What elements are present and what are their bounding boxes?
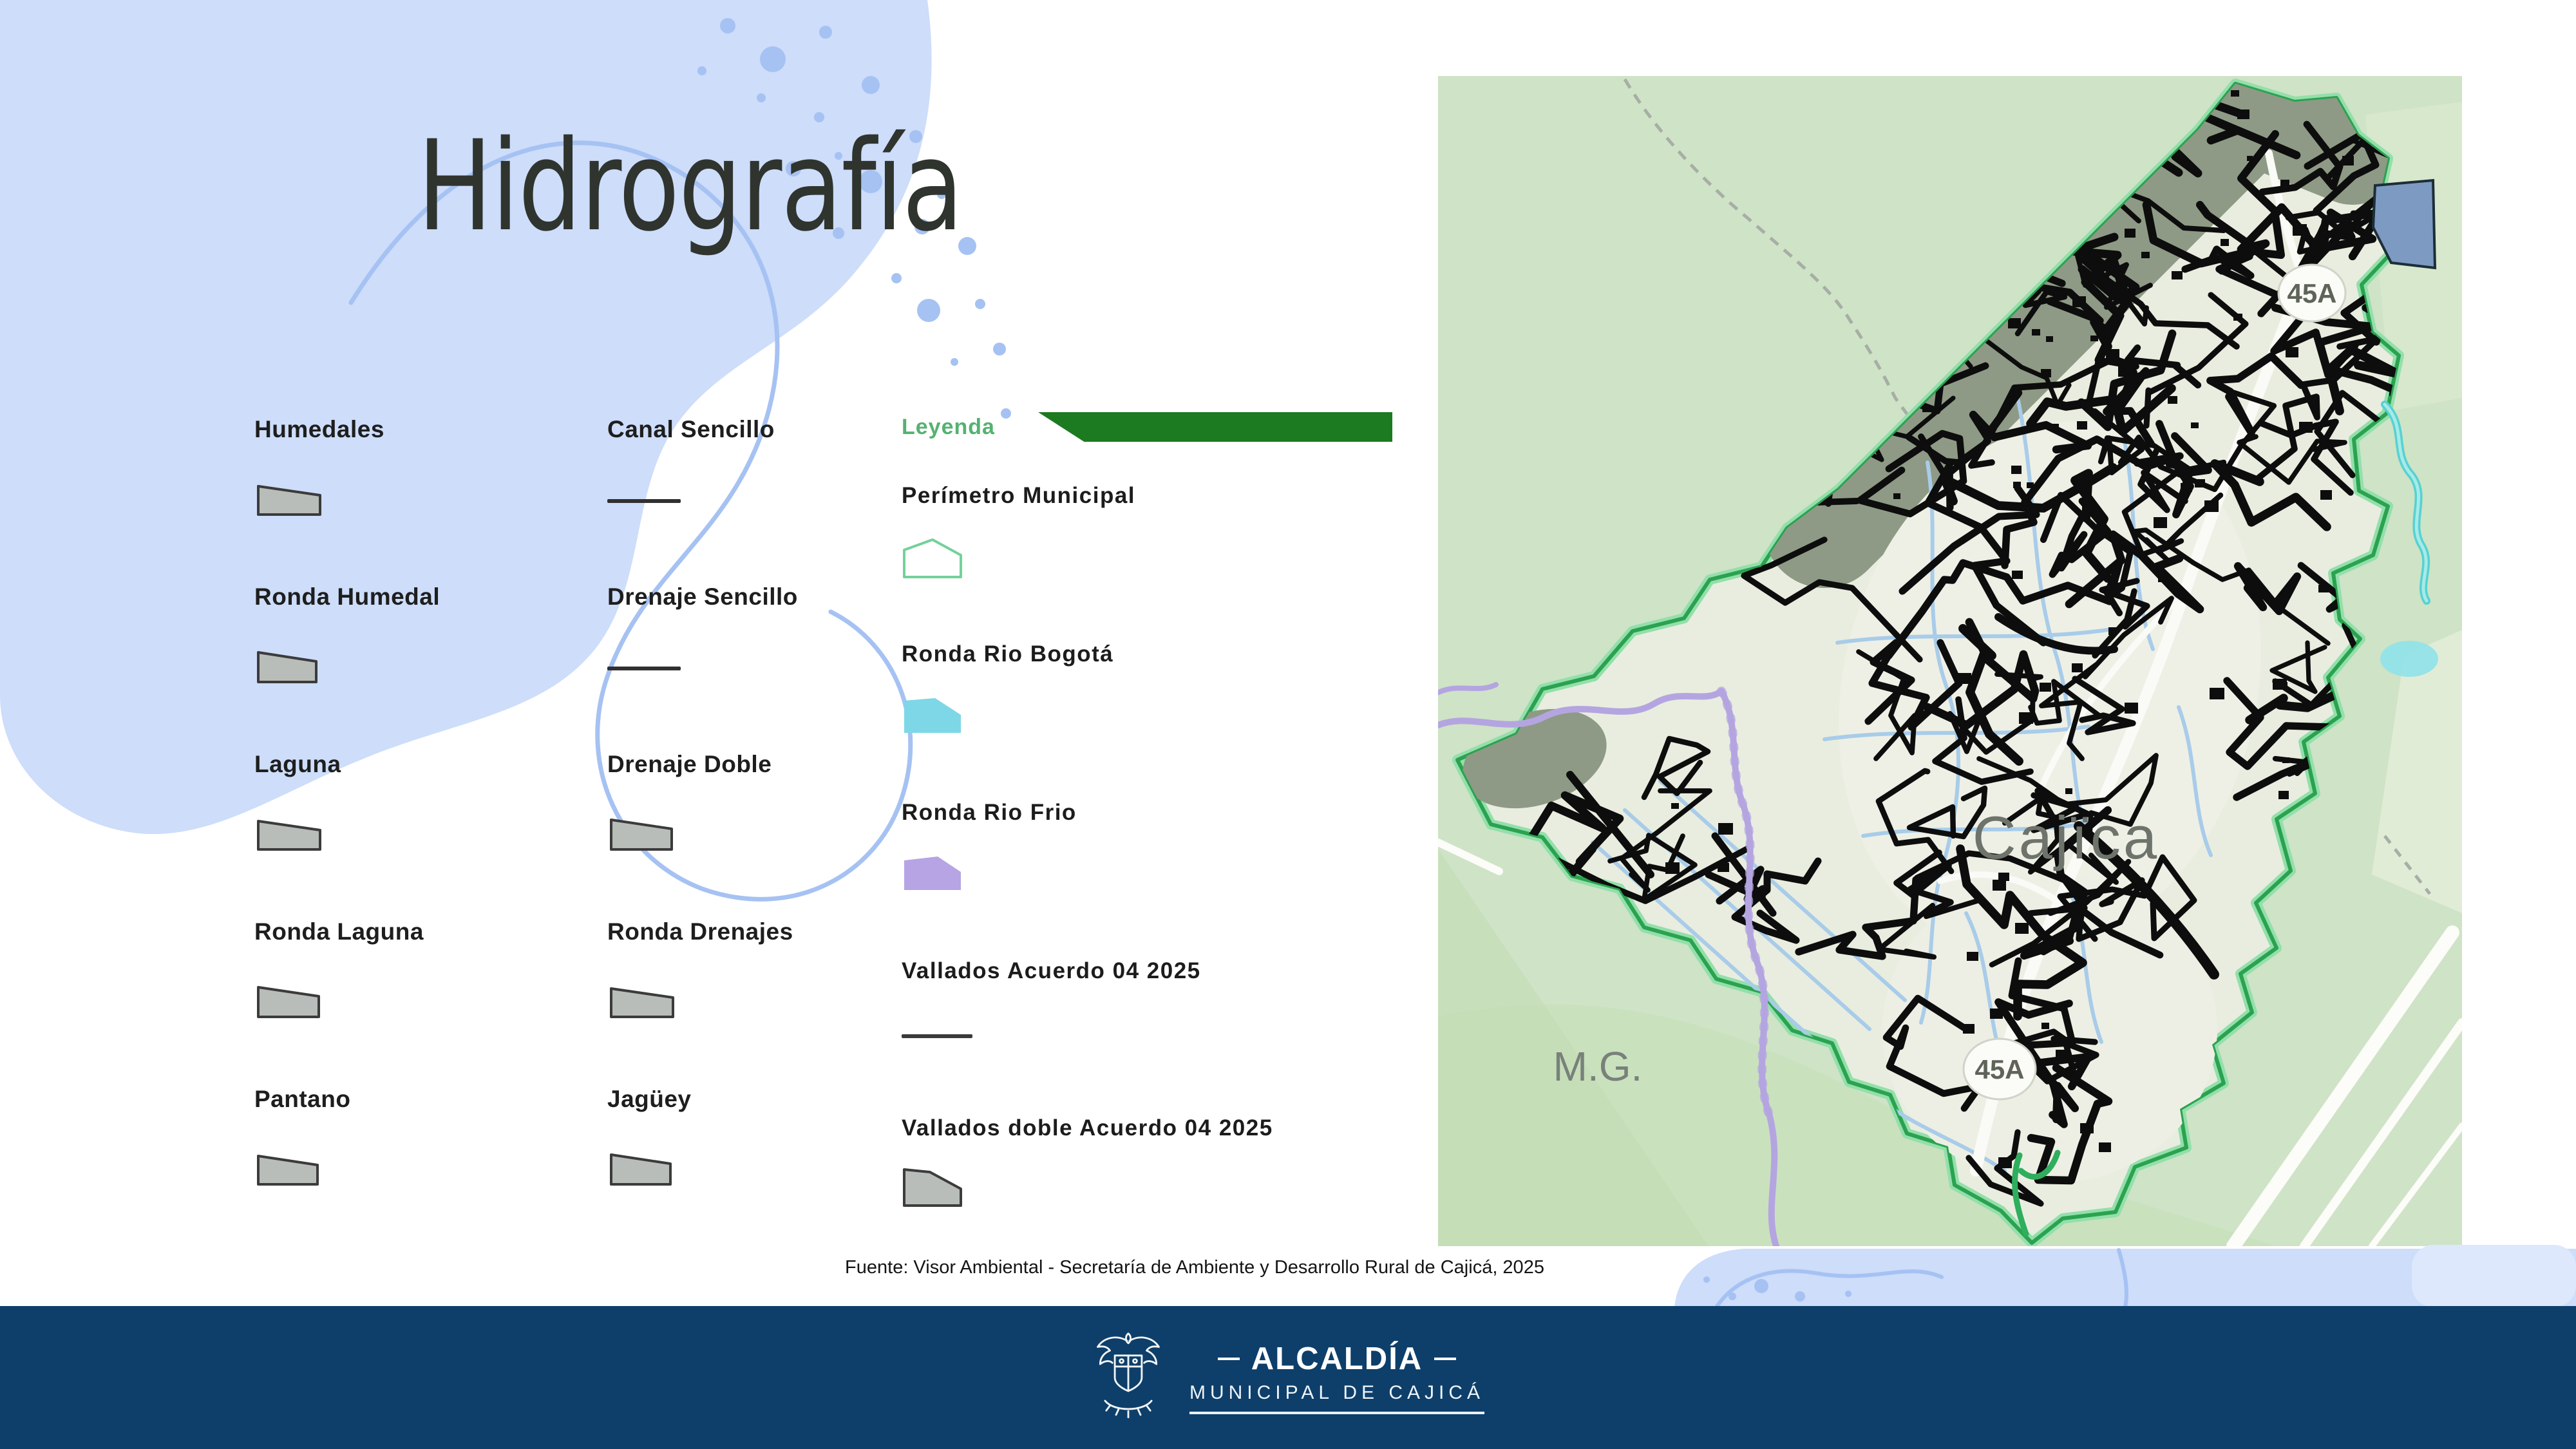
decorative-blob-bottom-right xyxy=(1513,1240,2576,1307)
legend-item: Ronda Drenajes xyxy=(607,918,942,1021)
line-symbol xyxy=(607,499,681,503)
legend-item-label: Drenaje Sencillo xyxy=(607,583,942,611)
dash-left xyxy=(1218,1358,1240,1360)
leyenda-item-label: Perímetro Municipal xyxy=(902,482,1410,510)
city-label: Cajïca xyxy=(1973,804,2159,871)
legend-item-label: Drenaje Doble xyxy=(607,750,942,779)
polygon-symbol-cyan xyxy=(902,696,966,739)
legend-item-label: Ronda Laguna xyxy=(254,918,589,946)
legend-item-label: Ronda Humedal xyxy=(254,583,589,611)
polygon-symbol-gray xyxy=(254,811,325,853)
org-name: ALCALDÍA xyxy=(1251,1341,1423,1377)
blob-light-corner xyxy=(2412,1245,2576,1307)
line-symbol xyxy=(607,667,681,670)
cyan-wetland xyxy=(2380,641,2438,677)
legend-item: Humedales xyxy=(254,415,589,518)
polygon-symbol-purple xyxy=(902,854,966,898)
org-text-block: ALCALDÍA MUNICIPAL DE CAJICÁ xyxy=(1189,1341,1484,1414)
leyenda-item: Perímetro Municipal xyxy=(902,482,1410,581)
page-title: Hidrografía xyxy=(417,115,962,258)
leyenda-item-label: Ronda Rio Frio xyxy=(902,799,1410,827)
org-subtitle: MUNICIPAL DE CAJICÁ xyxy=(1189,1382,1484,1404)
polygon-symbol-outline-green xyxy=(902,537,966,581)
hydrography-map: Cajïca M.G. 45A 45A xyxy=(1438,76,2462,1246)
legend-item: Drenaje Sencillo xyxy=(607,583,942,670)
legend-item: Ronda Humedal xyxy=(254,583,589,686)
legend-item: Canal Sencillo xyxy=(607,415,942,503)
legend-item-label: Jagüey xyxy=(607,1085,942,1113)
legend-item: Drenaje Doble xyxy=(607,750,942,853)
legend-item-label: Pantano xyxy=(254,1085,589,1113)
route-shield-ne: 45A xyxy=(2278,265,2345,321)
source-note: Fuente: Visor Ambiental - Secretaría de … xyxy=(799,1257,1591,1278)
legend-item-label: Canal Sencillo xyxy=(607,415,942,444)
map-canvas: Cajïca M.G. 45A 45A xyxy=(1438,76,2462,1246)
leyenda-item: Ronda Rio Frio xyxy=(902,799,1410,898)
leyenda-item: Vallados doble Acuerdo 04 2025 xyxy=(902,1114,1410,1209)
coat-of-arms-icon xyxy=(1092,1329,1165,1426)
legend-item: Ronda Laguna xyxy=(254,918,589,1021)
legend-item-label: Humedales xyxy=(254,415,589,444)
leyenda-header: Leyenda xyxy=(902,412,1392,442)
line-symbol xyxy=(902,1034,972,1038)
polygon-symbol-gray xyxy=(254,476,325,518)
org-line1: ALCALDÍA xyxy=(1218,1341,1456,1377)
polygon-symbol-gray xyxy=(254,978,325,1021)
polygon-symbol-gray xyxy=(607,1146,678,1188)
leyenda-item: Vallados Acuerdo 04 2025 xyxy=(902,957,1410,1038)
polygon-symbol-gray xyxy=(254,643,325,686)
polygon-symbol-gray xyxy=(254,1146,325,1188)
svg-text:45A: 45A xyxy=(1975,1054,2024,1084)
slide-canvas: Hidrografía Humedales Ronda Humedal Lagu… xyxy=(0,0,2576,1449)
leyenda-title: Leyenda xyxy=(902,415,1038,440)
route-shield-south: 45A xyxy=(1964,1039,2036,1099)
neighbor-label: M.G. xyxy=(1553,1043,1643,1090)
dash-right xyxy=(1434,1358,1456,1360)
legend-item: Laguna xyxy=(254,750,589,853)
polygon-symbol-gray xyxy=(902,1166,966,1209)
polygon-symbol-gray xyxy=(607,811,678,853)
svg-text:45A: 45A xyxy=(2287,278,2336,308)
leyenda-banner xyxy=(1038,412,1392,442)
polygon-symbol-gray xyxy=(607,978,678,1021)
legend-item: Pantano xyxy=(254,1085,589,1188)
legend-item: Jagüey xyxy=(607,1085,942,1188)
legend-item-label: Laguna xyxy=(254,750,589,779)
leyenda-item: Ronda Rio Bogotá xyxy=(902,640,1410,739)
leyenda-item-label: Ronda Rio Bogotá xyxy=(902,640,1410,668)
legend-item-label: Ronda Drenajes xyxy=(607,918,942,946)
leyenda-item-label: Vallados doble Acuerdo 04 2025 xyxy=(902,1114,1410,1142)
footer-bar: ALCALDÍA MUNICIPAL DE CAJICÁ xyxy=(0,1306,2576,1449)
leyenda-item-label: Vallados Acuerdo 04 2025 xyxy=(902,957,1410,985)
